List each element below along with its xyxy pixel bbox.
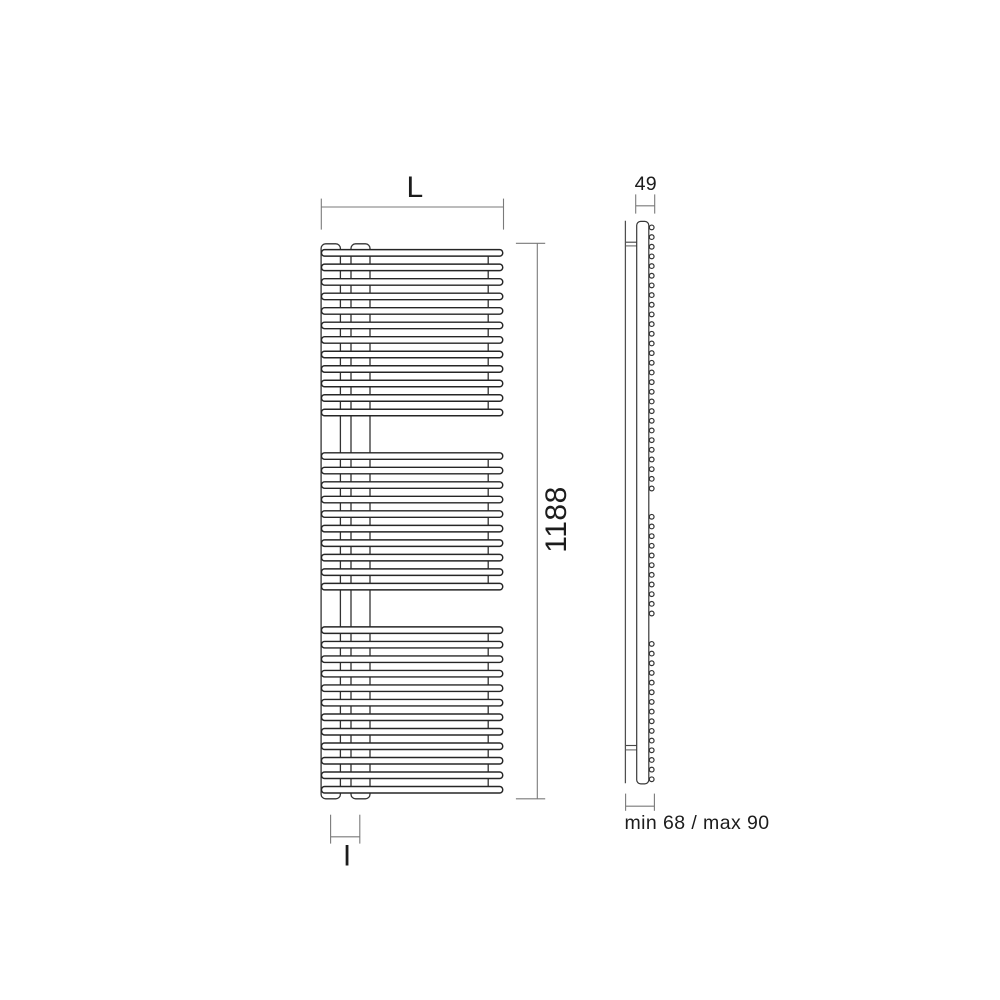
svg-text:I: I xyxy=(343,839,351,872)
svg-text:49: 49 xyxy=(635,173,657,195)
svg-text:1188: 1188 xyxy=(540,486,573,553)
svg-text:min 68 / max 90: min 68 / max 90 xyxy=(625,812,770,834)
svg-text:L: L xyxy=(407,171,424,204)
